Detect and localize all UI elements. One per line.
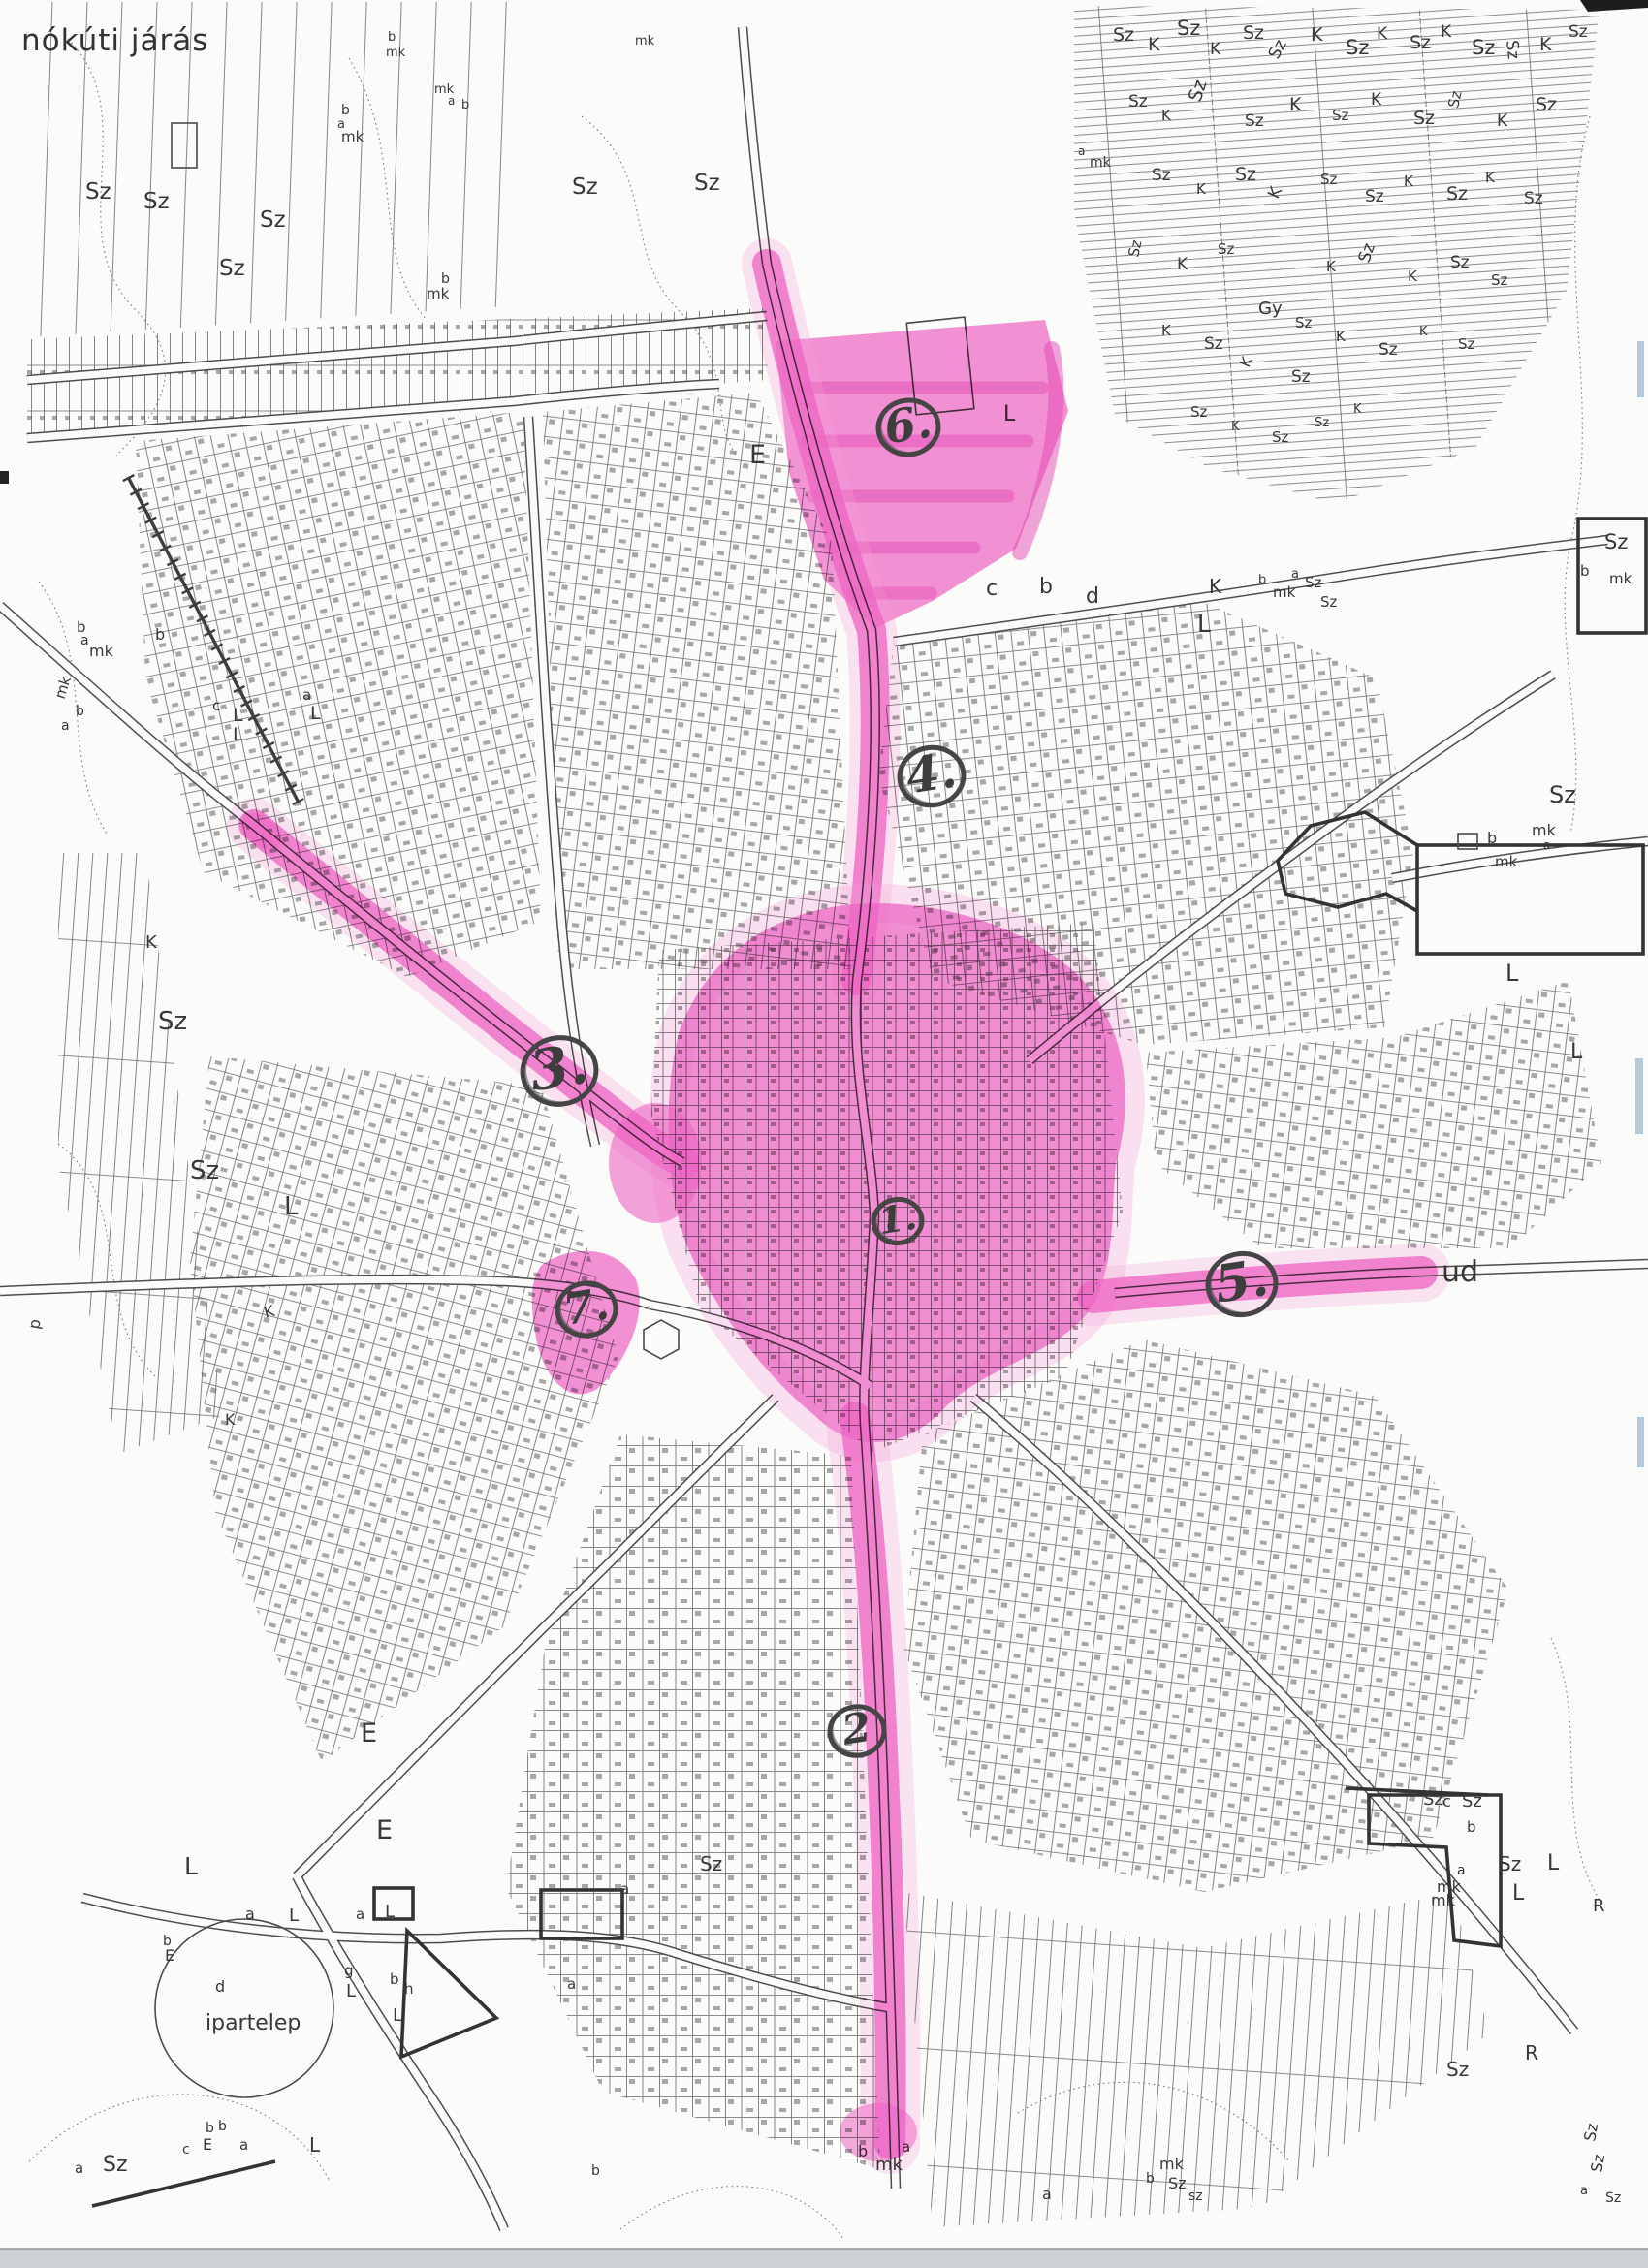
map-label: mk — [1431, 1891, 1456, 1909]
map-label: a — [620, 1880, 629, 1898]
map-label: h — [404, 1980, 414, 1998]
map-label: K — [1161, 322, 1172, 339]
map-label: Sz — [572, 174, 598, 200]
map-label: K — [1441, 22, 1452, 42]
map-label: L — [385, 1902, 395, 1922]
map-label: Sz — [1190, 403, 1208, 421]
map-label: Sz — [1177, 16, 1200, 40]
map-label: Sz — [1320, 593, 1338, 611]
map-label: mk — [1495, 853, 1518, 870]
map-label: b — [1258, 573, 1266, 587]
map-label: L — [289, 1906, 299, 1926]
map-label: a — [239, 2136, 248, 2154]
map-label: Sz — [1580, 2122, 1601, 2143]
map-label: a — [61, 718, 70, 734]
map-label: E — [376, 1815, 393, 1845]
map-label: b — [1467, 1818, 1476, 1836]
area-marker-number: 1. — [875, 1195, 920, 1244]
map-label: K — [1419, 325, 1428, 339]
map-label: K — [1161, 107, 1172, 124]
map-label: b — [461, 98, 469, 112]
map-label: Sz — [1410, 32, 1431, 53]
scan-bottom-band — [0, 2249, 1648, 2268]
map-label: Sz — [1204, 334, 1223, 354]
cadastral-map-scan: nókúti járás SzSzSzSzSzSzbamkmkbmkabmkbm… — [0, 0, 1648, 2268]
map-label: Sz — [190, 1156, 219, 1185]
map-label: mk — [1609, 570, 1632, 587]
area-marker-number: 5. — [1211, 1248, 1273, 1315]
map-label: Sz — [1235, 164, 1256, 185]
map-label: Sz — [700, 1852, 722, 1875]
map-label: Sz — [1218, 240, 1235, 258]
map-label: Sz — [1413, 108, 1435, 129]
map-label: Sz — [1450, 253, 1470, 272]
map-label: Sz — [143, 189, 170, 214]
map-label: L — [1197, 610, 1211, 638]
map-label: K — [1353, 402, 1362, 417]
map-label: sz — [1188, 2189, 1203, 2204]
map-label: E — [749, 440, 766, 470]
map-label: Sz — [1458, 335, 1475, 353]
map-label: L — [393, 2005, 402, 2026]
map-label: Sz — [1128, 92, 1148, 111]
map-label: Sz — [1243, 22, 1264, 44]
map-label: g — [344, 1962, 354, 1979]
map-label: K — [225, 1410, 236, 1429]
map-label: d — [215, 1977, 225, 1996]
map-label: K — [1209, 575, 1222, 598]
map-label: b — [155, 625, 165, 644]
map-label: K — [1497, 111, 1508, 131]
map-label: b — [1487, 829, 1497, 847]
map-label: b — [591, 2163, 600, 2179]
map-label: b — [1146, 2171, 1155, 2187]
map-label: c — [212, 697, 220, 714]
map-label: b — [206, 2121, 214, 2136]
map-label: a — [75, 2159, 83, 2177]
map-label: a — [567, 1975, 576, 1993]
map-label: mk — [427, 285, 450, 302]
map-label: b — [341, 103, 350, 118]
map-label: a — [1042, 2185, 1052, 2203]
map-label: a — [1457, 1863, 1466, 1878]
map-label: Sz — [694, 171, 720, 196]
map-label: K — [1336, 328, 1347, 345]
map-label: L — [310, 703, 321, 724]
map-label: K — [1148, 34, 1160, 55]
map-label: Sz — [1446, 183, 1468, 205]
map-label: L — [1505, 960, 1519, 987]
map-label: a — [302, 686, 311, 704]
map-label: a — [356, 1906, 364, 1923]
map-label: Sz — [1462, 1791, 1482, 1811]
map-label: Sz — [1502, 39, 1523, 60]
area-marker-number: 4. — [902, 741, 960, 804]
map-label: Sz — [1245, 111, 1264, 131]
map-label: Sz — [1113, 24, 1134, 46]
map-label: Sz — [1604, 530, 1628, 553]
map-label: a — [245, 1905, 255, 1923]
map-label: Sz — [158, 1007, 187, 1036]
map-label: K — [1485, 169, 1496, 186]
map-label: K — [1371, 90, 1382, 110]
map-label: Sz — [219, 256, 245, 281]
map-label: L — [233, 705, 243, 726]
map-label: b — [76, 704, 84, 719]
map-label: K — [1404, 173, 1414, 190]
map-label: mk — [1159, 2155, 1185, 2173]
map-sheet-title: nókúti járás — [21, 23, 208, 58]
map-label: a — [80, 633, 89, 648]
map-label: a — [1078, 144, 1085, 158]
map-label: E — [165, 1946, 174, 1965]
area-marker-number: 7. — [559, 1277, 613, 1336]
map-label: Sz — [1569, 22, 1588, 42]
map-label: ipartelep — [206, 2011, 301, 2035]
area-marker-number: 3. — [525, 1031, 592, 1104]
scan-edge-mark — [0, 471, 9, 484]
map-label: Sz — [1332, 107, 1349, 124]
map-label: K — [145, 932, 158, 953]
map-label: K — [1539, 34, 1552, 55]
map-label: R — [1593, 1896, 1605, 1916]
map-label: c — [182, 2142, 190, 2158]
map-label: L — [233, 724, 243, 745]
map-label: Sz — [1446, 2058, 1469, 2081]
map-label: K — [1289, 94, 1302, 115]
map-label: mk — [1532, 821, 1557, 839]
map-label: Sz — [85, 179, 111, 205]
map-label: a — [1291, 567, 1299, 582]
map-label: d — [1086, 584, 1099, 609]
map-label: Sz — [1346, 36, 1369, 59]
map-label: Sz — [1315, 416, 1329, 430]
area-marker-number: 6. — [880, 394, 935, 455]
map-label: L — [1512, 1881, 1525, 1906]
map-label: a — [1543, 838, 1550, 852]
map-label: L — [1547, 1851, 1560, 1875]
map-label: Sz — [1291, 367, 1311, 387]
map-label: Sz — [1587, 2153, 1608, 2174]
map-label: b — [390, 1970, 399, 1988]
map-label: Sz — [1295, 314, 1313, 331]
map-label: Sz — [1305, 574, 1322, 591]
map-label: Gy — [1258, 299, 1283, 319]
map-label: Sz — [1499, 1852, 1521, 1875]
map-label: Sz — [1472, 36, 1495, 59]
map-label: Sz — [103, 2153, 128, 2177]
map-label: b — [388, 30, 396, 45]
map-label: L — [309, 2133, 321, 2157]
map-label: L — [1570, 1040, 1583, 1064]
map-label: Sz — [260, 207, 286, 233]
map-label: mk — [1090, 155, 1112, 171]
map-label: K — [1196, 180, 1207, 198]
map-label: K — [1177, 255, 1188, 274]
map-label: mk — [89, 642, 114, 660]
map-label: Sz — [1168, 2174, 1187, 2192]
map-label: Sz — [1152, 166, 1171, 185]
map-label: c — [986, 577, 998, 601]
map-label: Sz — [1549, 781, 1576, 808]
map-label: K — [1408, 268, 1418, 285]
map-label: R — [1525, 2041, 1538, 2064]
map-label: E — [361, 1718, 377, 1748]
map-label: Sz — [1272, 428, 1289, 446]
map-label: Sz — [1379, 340, 1398, 360]
map-label: a — [448, 94, 455, 108]
map-label: mk — [1273, 583, 1296, 601]
map-label: K — [1231, 420, 1240, 434]
map-label: L — [284, 1192, 299, 1221]
map-label: b — [218, 2119, 227, 2134]
map-canvas: nókúti járás SzSzSzSzSzSzbamkmkbmkabmkbm… — [0, 0, 1648, 2268]
map-label: L — [184, 1852, 198, 1880]
map-label: b — [1039, 575, 1053, 599]
map-label: mk — [341, 128, 364, 145]
map-label: Sz — [1605, 2190, 1621, 2206]
map-label: Sz — [1491, 271, 1508, 289]
map-label: E — [203, 2135, 212, 2154]
map-label: K — [1311, 24, 1323, 46]
map-label: K — [1326, 258, 1337, 275]
map-label: K — [1377, 24, 1388, 44]
map-label: b — [1580, 562, 1590, 580]
map-label: Sz — [1536, 94, 1557, 115]
map-label: Sz — [1320, 171, 1338, 188]
map-label: mk — [386, 46, 406, 60]
map-label: Sz — [1524, 189, 1543, 208]
map-label: Sz — [1423, 1789, 1443, 1810]
map-label: a — [1580, 2184, 1588, 2198]
map-label: Sz — [1365, 187, 1384, 206]
map-label: mk — [635, 34, 655, 48]
map-label: c — [1442, 1792, 1451, 1811]
map-label: L — [346, 1981, 356, 2001]
map-label: K — [1210, 40, 1221, 59]
